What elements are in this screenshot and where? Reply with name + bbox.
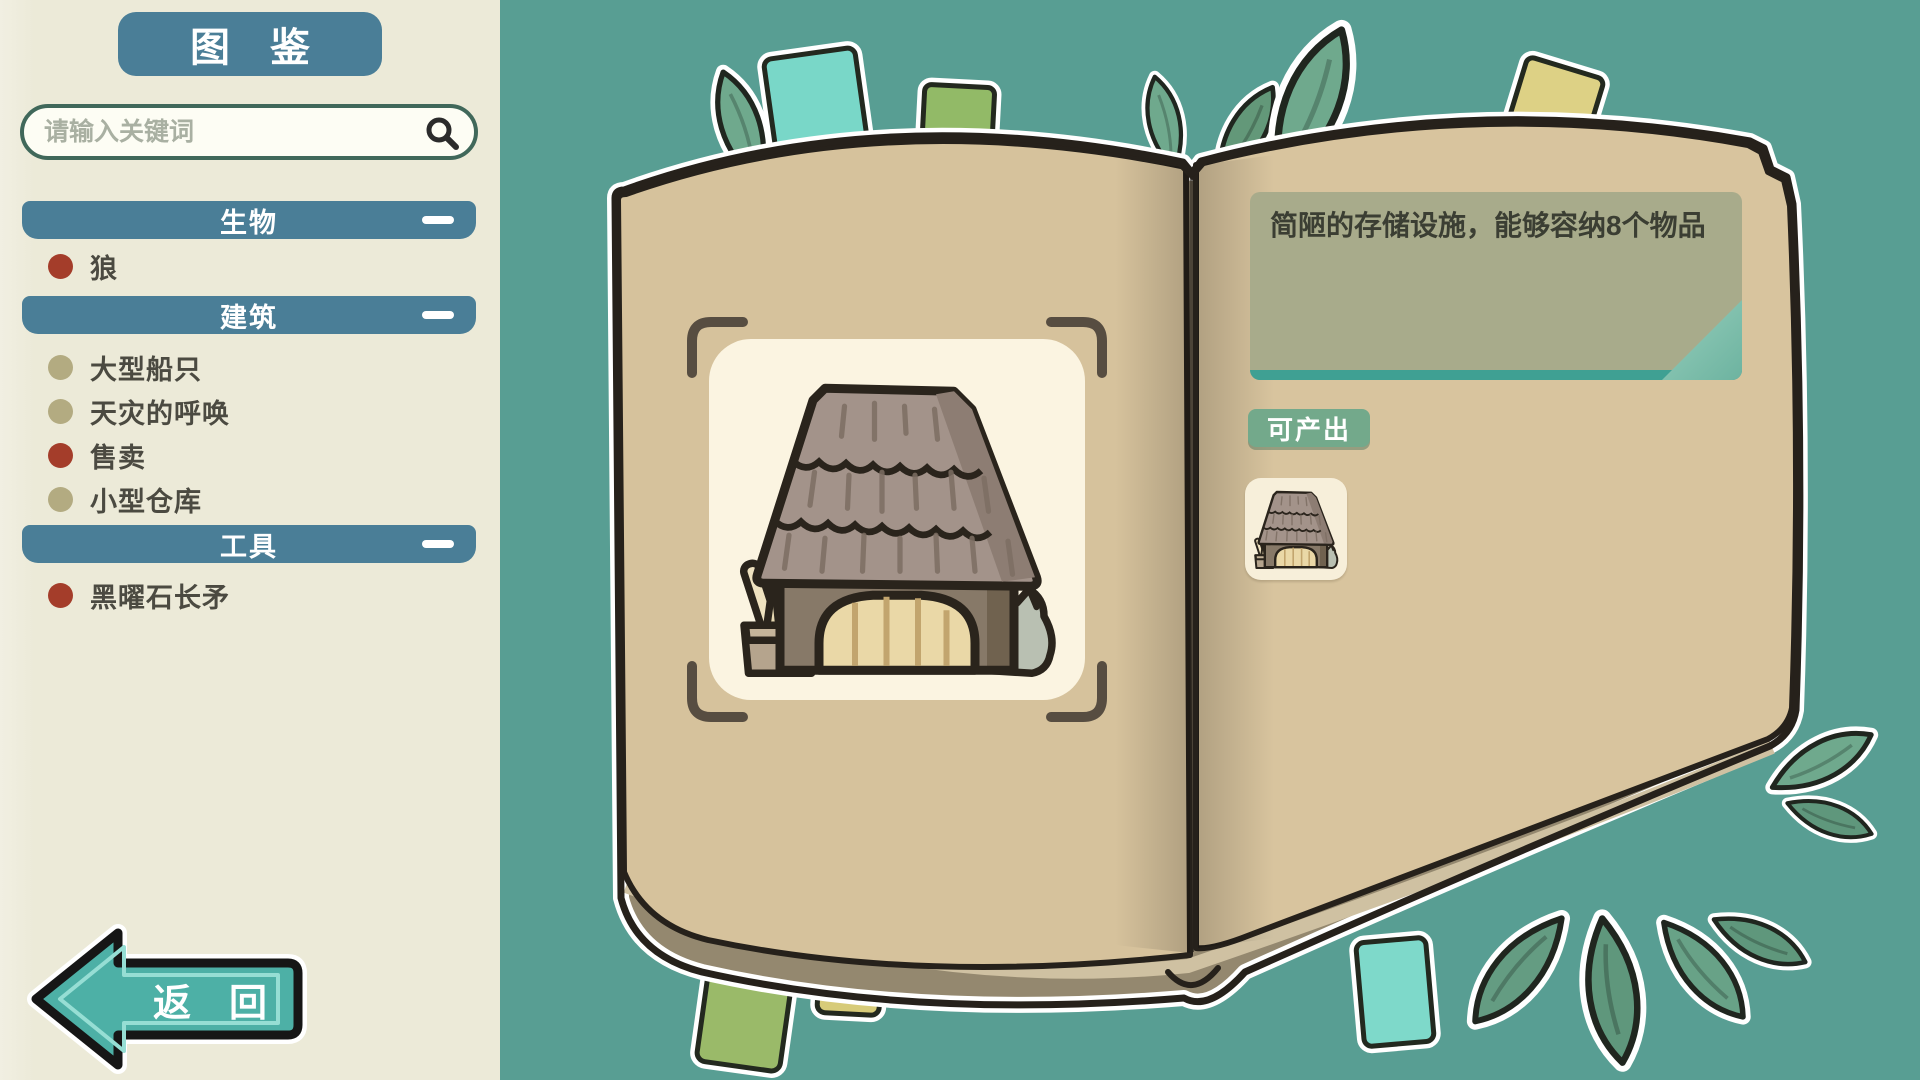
sidebar-item-sell[interactable]: 售卖 [48, 435, 448, 475]
collapse-icon[interactable] [422, 540, 454, 548]
produces-badge-label: 可产出 [1267, 410, 1351, 447]
item-label: 狼 [90, 247, 118, 286]
item-label: 小型仓库 [90, 480, 202, 519]
item-label: 黑曜石长矛 [90, 576, 230, 615]
produce-item-tile[interactable] [1245, 478, 1347, 580]
sidebar: 图 鉴 生物 狼 建筑 大型船只 天灾的呼唤 [0, 0, 500, 1080]
selection-frame [683, 313, 1111, 726]
item-bullet [48, 583, 73, 608]
entry-description: 简陋的存储设施，能够容纳8个物品 [1270, 206, 1722, 247]
section-label: 建筑 [220, 296, 278, 335]
sidebar-item-small-warehouse[interactable]: 小型仓库 [48, 479, 448, 519]
entry-description-box: 简陋的存储设施，能够容纳8个物品 [1250, 192, 1742, 380]
produces-badge: 可产出 [1248, 409, 1370, 447]
search-input[interactable] [24, 108, 474, 156]
sidebar-item-obsidian-spear[interactable]: 黑曜石长矛 [48, 575, 448, 615]
item-label: 售卖 [90, 436, 146, 475]
back-button[interactable]: 返 回 [26, 924, 316, 1074]
section-header-buildings[interactable]: 建筑 [22, 296, 476, 334]
collapse-icon[interactable] [422, 216, 454, 224]
item-bullet [48, 355, 73, 380]
bookmark-tab [1356, 937, 1435, 1047]
collapse-icon[interactable] [422, 311, 454, 319]
small-warehouse-icon [1252, 487, 1340, 571]
sidebar-item-large-ship[interactable]: 大型船只 [48, 347, 448, 387]
item-bullet [48, 487, 73, 512]
sidebar-item-wolf[interactable]: 狼 [48, 246, 448, 286]
back-button-label: 返 回 [122, 964, 298, 1034]
sidebar-item-calamity-call[interactable]: 天灾的呼唤 [48, 391, 448, 431]
search-box [20, 104, 478, 160]
item-label: 大型船只 [90, 348, 202, 387]
item-label: 天灾的呼唤 [90, 392, 230, 431]
page-fold-corner-icon [1662, 300, 1742, 380]
screen: 简陋的存储设施，能够容纳8个物品 可产出 图 鉴 生物 狼 建筑 [0, 0, 1920, 1080]
page-title: 图 鉴 [118, 12, 382, 76]
section-header-tools[interactable]: 工具 [22, 525, 476, 563]
item-bullet [48, 399, 73, 424]
section-header-creatures[interactable]: 生物 [22, 201, 476, 239]
item-bullet [48, 254, 73, 279]
item-bullet [48, 443, 73, 468]
section-label: 生物 [220, 201, 278, 240]
section-label: 工具 [220, 525, 278, 564]
search-icon[interactable] [424, 115, 460, 151]
